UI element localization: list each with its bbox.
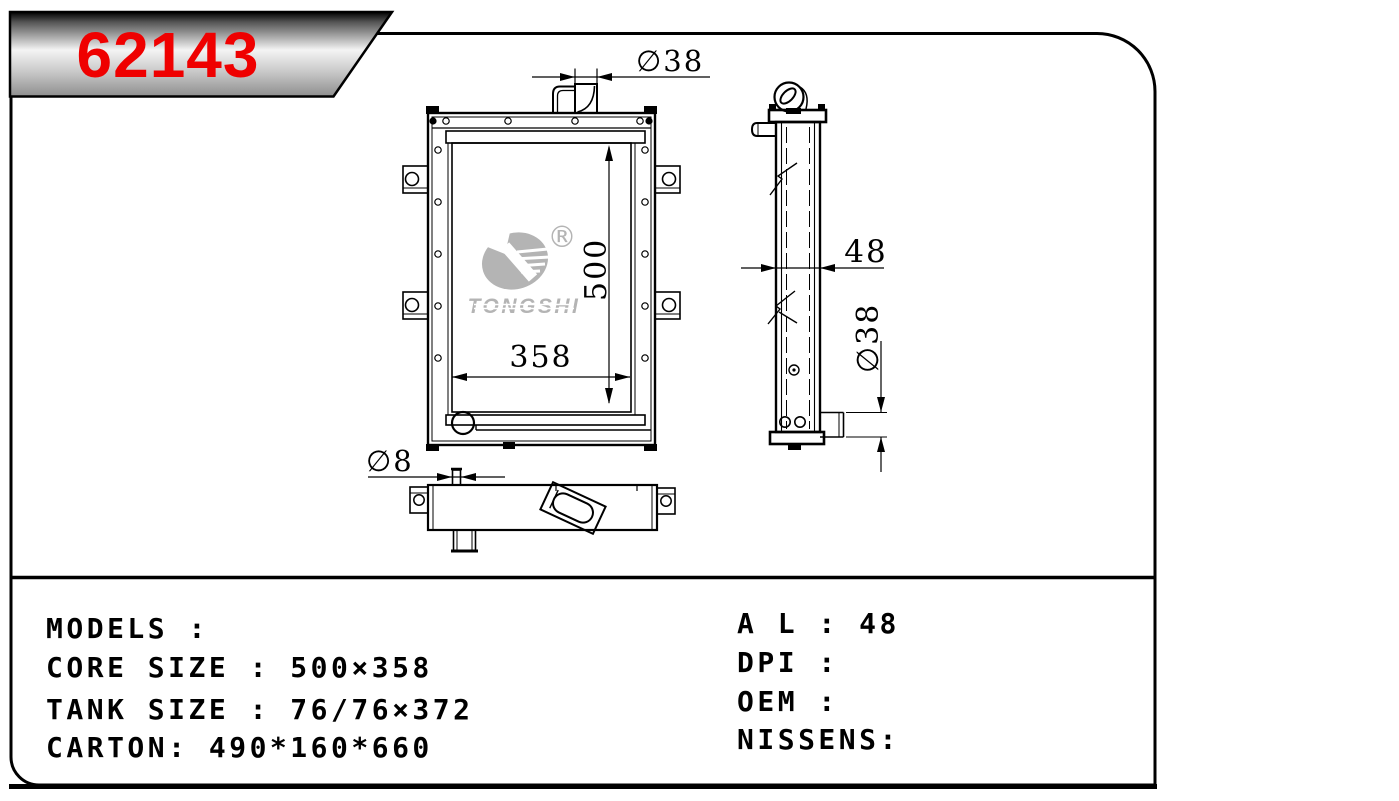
svg-text:358: 358 xyxy=(509,340,572,375)
filler-cap xyxy=(775,83,804,112)
spec-al: A L : 48 xyxy=(737,607,900,640)
dim-core-height: 500 xyxy=(579,145,614,404)
spec-nissens: NISSENS: xyxy=(737,723,900,756)
filler-neck-top-view xyxy=(540,482,605,534)
spec-tank-size: TANK SIZE : 76/76×372 xyxy=(46,693,474,726)
svg-text:∅38: ∅38 xyxy=(851,303,886,373)
svg-text:∅38: ∅38 xyxy=(636,44,704,78)
dim-outlet-diameter: ∅38 xyxy=(846,303,887,472)
svg-text:∅8: ∅8 xyxy=(366,444,414,478)
registered-mark: ® xyxy=(548,220,577,254)
brand-name: TONGSHI xyxy=(468,295,581,318)
spec-oem: OEM : xyxy=(737,685,839,718)
mounting-tabs xyxy=(426,106,657,451)
tongshi-watermark: ® TONGSHI xyxy=(468,220,581,318)
dim-filler-diameter: ∅38 xyxy=(532,44,710,84)
part-number-banner: 62143 xyxy=(10,12,392,97)
spec-dpi: DPI : xyxy=(737,646,839,679)
spec-models: MODELS : xyxy=(46,612,209,645)
filler-neck xyxy=(553,84,597,113)
inlet-stub xyxy=(752,123,776,136)
svg-text:48: 48 xyxy=(844,234,887,270)
bottom-view: ∅8 xyxy=(366,444,675,551)
side-view: 48 ∅38 xyxy=(741,83,888,473)
spec-core-size: CORE SIZE : 500×358 xyxy=(46,651,433,684)
drawing-sheet: 62143 ® TONGSHI xyxy=(0,0,1399,801)
frame-holes xyxy=(430,118,652,361)
svg-text:500: 500 xyxy=(579,238,614,301)
part-number: 62143 xyxy=(77,19,260,91)
dim-core-width: 358 xyxy=(452,340,630,381)
spec-carton: CARTON: 490*160*660 xyxy=(46,731,433,764)
bottom-outlet-stub xyxy=(451,530,478,551)
